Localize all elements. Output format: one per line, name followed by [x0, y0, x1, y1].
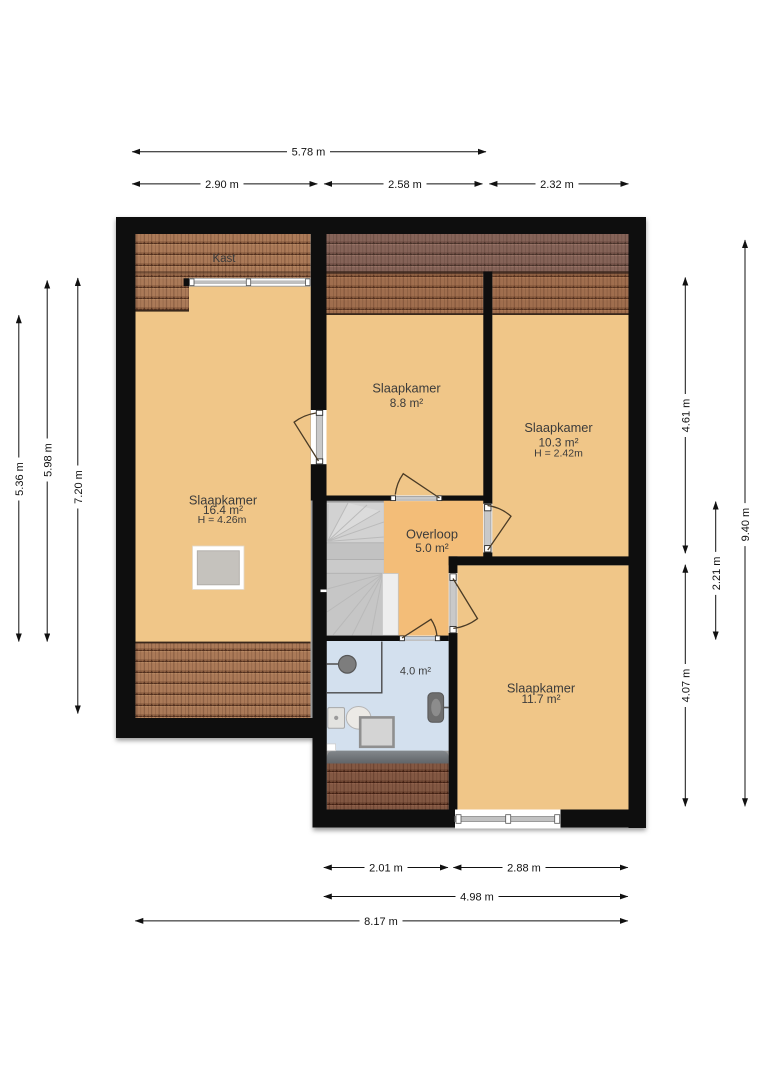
svg-text:2.58 m: 2.58 m — [388, 179, 422, 191]
svg-text:5.78 m: 5.78 m — [292, 147, 326, 159]
svg-text:2.90 m: 2.90 m — [205, 179, 239, 191]
svg-text:Kast: Kast — [212, 253, 236, 265]
svg-text:5.98 m: 5.98 m — [42, 443, 54, 477]
svg-text:7.20 m: 7.20 m — [73, 470, 85, 504]
svg-text:8.8 m²: 8.8 m² — [390, 396, 424, 410]
svg-text:H = 2.42m: H = 2.42m — [534, 448, 583, 460]
svg-text:Slaapkamer: Slaapkamer — [524, 420, 593, 435]
svg-text:4.07 m: 4.07 m — [681, 669, 693, 703]
svg-text:8.17 m: 8.17 m — [364, 916, 398, 928]
svg-text:9.40 m: 9.40 m — [740, 508, 752, 542]
svg-text:Slaapkamer: Slaapkamer — [372, 381, 441, 396]
svg-text:5.36 m: 5.36 m — [14, 462, 26, 496]
svg-text:4.98 m: 4.98 m — [460, 892, 494, 904]
svg-text:Overloop: Overloop — [406, 527, 458, 542]
svg-text:4.0 m²: 4.0 m² — [400, 666, 432, 678]
svg-text:4.61 m: 4.61 m — [681, 399, 693, 433]
svg-text:5.0 m²: 5.0 m² — [415, 541, 449, 555]
svg-text:2.32 m: 2.32 m — [540, 179, 574, 191]
svg-text:2.88 m: 2.88 m — [507, 863, 541, 875]
svg-text:2.21 m: 2.21 m — [711, 557, 723, 591]
svg-text:H = 4.26m: H = 4.26m — [198, 514, 247, 526]
svg-text:2.01 m: 2.01 m — [369, 863, 403, 875]
svg-text:11.7 m²: 11.7 m² — [521, 692, 560, 706]
